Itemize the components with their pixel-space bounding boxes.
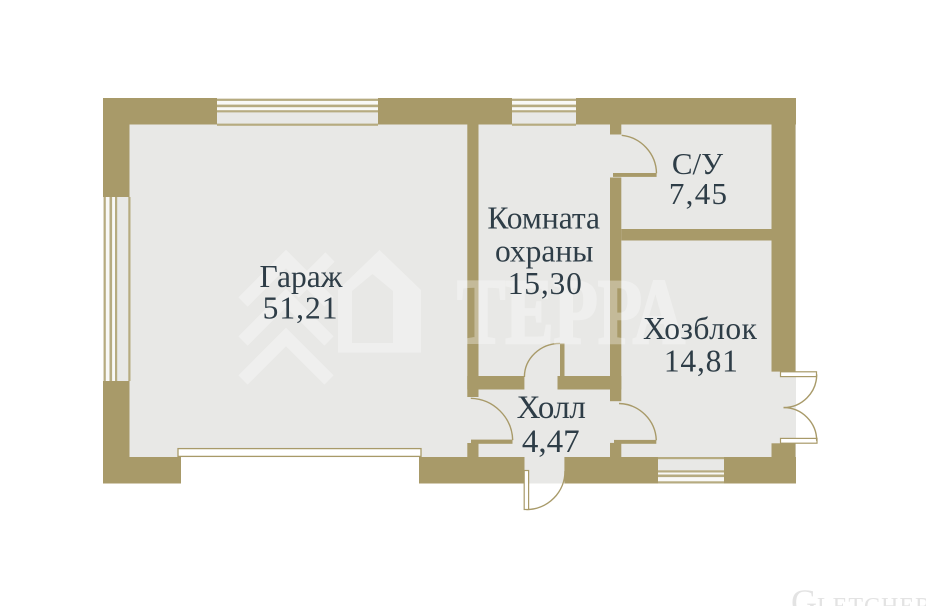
svg-text:GLETCHER: GLETCHER xyxy=(791,582,926,606)
svg-text:7,45: 7,45 xyxy=(669,176,728,211)
svg-text:Комната: Комната xyxy=(487,201,600,236)
svg-text:Гараж: Гараж xyxy=(260,259,343,294)
svg-text:Холл: Холл xyxy=(517,390,586,426)
svg-text:51,21: 51,21 xyxy=(263,291,339,326)
svg-text:охраны: охраны xyxy=(495,233,593,268)
svg-text:15,30: 15,30 xyxy=(508,266,583,301)
svg-text:4,47: 4,47 xyxy=(522,424,580,460)
svg-text:14,81: 14,81 xyxy=(664,343,739,378)
svg-text:Хозблок: Хозблок xyxy=(643,311,758,346)
